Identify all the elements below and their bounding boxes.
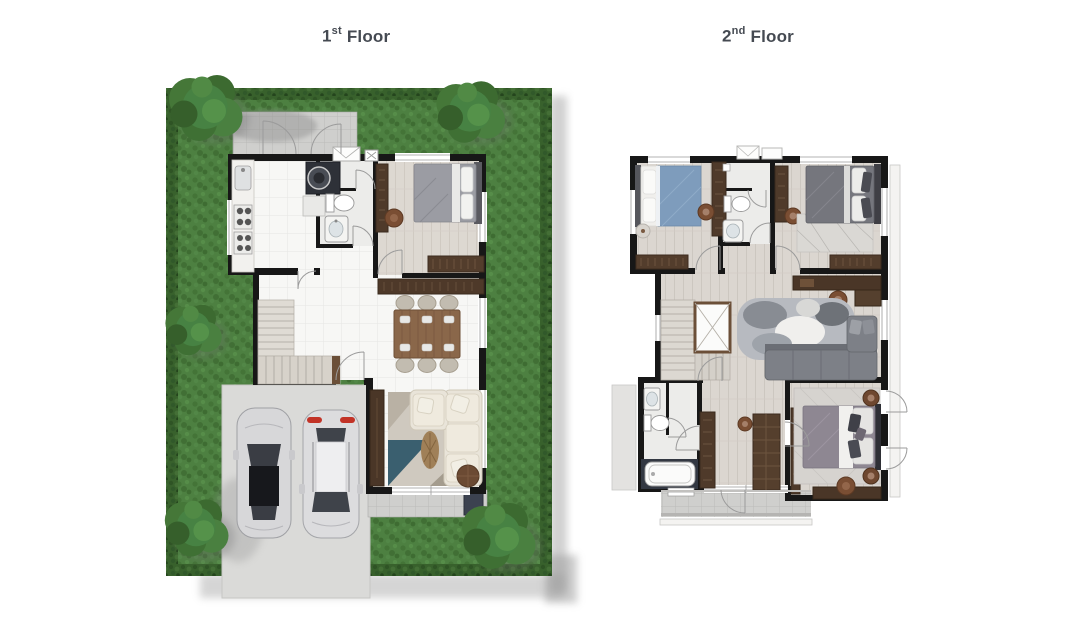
pouf-icon (457, 465, 479, 487)
canopy-icon (762, 148, 782, 159)
stair-void (695, 303, 730, 352)
drain (723, 164, 730, 171)
pouf-icon (837, 477, 855, 495)
dresser-icon (428, 256, 484, 272)
wardrobe (753, 414, 780, 490)
window (880, 188, 889, 236)
washing-machine-icon (308, 167, 330, 189)
vent-icon (365, 150, 378, 161)
stairwell-icon (661, 300, 730, 380)
sedan-car-icon (233, 408, 295, 538)
double-bed-icon (414, 162, 482, 224)
wash-basin-icon (723, 220, 743, 242)
dried-plant-icon (421, 431, 439, 469)
plot-shadow-right (550, 96, 567, 592)
sliding-door (392, 486, 470, 495)
floor1-plan (165, 75, 577, 603)
bottom-eave (660, 519, 812, 525)
sideboard-icon (378, 279, 484, 294)
kitchen-sink-icon (235, 166, 251, 190)
nightstand-icon (698, 204, 714, 220)
pouf-icon (636, 224, 650, 238)
window (395, 153, 450, 162)
double-bed-icon (806, 164, 881, 224)
window (880, 390, 889, 414)
window (648, 155, 690, 164)
stool-icon (738, 417, 752, 431)
kitchen-island (303, 196, 325, 216)
nightstand-icon (863, 390, 879, 406)
right-eave (890, 165, 900, 497)
wardrobe (700, 412, 715, 488)
floorplan-page: { "titles": { "floor1": { "number": "1",… (0, 0, 1080, 640)
dresser-icon (636, 255, 688, 269)
dresser-icon (830, 255, 881, 269)
armchair-icon (385, 209, 403, 227)
wash-basin-icon (325, 216, 348, 242)
window (800, 155, 852, 164)
nightstand-icon (863, 468, 879, 484)
suv-car-icon (299, 410, 363, 538)
toilet-icon (644, 415, 669, 431)
toilet-icon (326, 194, 354, 212)
floorplan-canvas (0, 0, 1080, 640)
entrance-canopy-icon (333, 147, 360, 161)
toilet-icon (724, 196, 750, 212)
side-ledge (612, 385, 636, 490)
single-bed-icon (635, 165, 701, 227)
floor2-plan (612, 146, 907, 525)
dining-table-icon (394, 310, 460, 358)
window (880, 446, 889, 470)
bathtub-icon (641, 459, 698, 489)
window (478, 298, 487, 348)
canopy-icon (737, 146, 759, 159)
master-bedroom (791, 388, 881, 499)
king-bed-icon (803, 404, 881, 470)
wash-basin-icon (644, 388, 660, 410)
